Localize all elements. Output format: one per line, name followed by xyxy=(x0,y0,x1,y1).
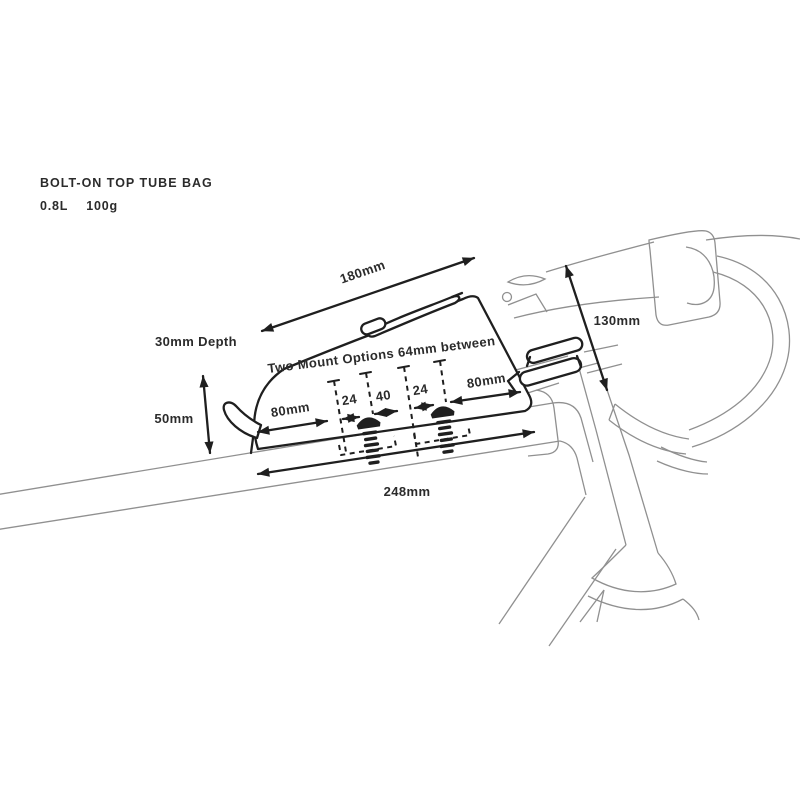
stem-top-cap xyxy=(508,276,545,285)
handlebar-top xyxy=(706,235,800,240)
label-130mm: 130mm xyxy=(594,313,641,328)
drop-bar-end-lower xyxy=(657,447,708,474)
handlebar-drop-outer xyxy=(692,256,790,447)
label-40mm: 40 xyxy=(375,387,392,404)
down-tube-upper-edge xyxy=(499,497,585,624)
fork-crown-upper xyxy=(592,545,676,592)
product-spec-page: BOLT-ON TOP TUBE BAG 0.8L 100g xyxy=(0,0,800,800)
stem-front-facet xyxy=(508,294,547,312)
label-180mm: 180mm xyxy=(338,257,387,286)
head-tube-right-edge xyxy=(598,363,658,553)
head-tube-left-edge xyxy=(579,368,626,545)
label-depth: 30mm Depth xyxy=(155,334,237,349)
stem-faceplate xyxy=(649,231,720,326)
front-mount-tab xyxy=(251,438,253,453)
top-tube-lower-line xyxy=(0,441,560,530)
down-tube-lower-edge xyxy=(549,549,616,646)
strap-tail-lines xyxy=(584,345,622,373)
label-50mm: 50mm xyxy=(154,411,193,426)
drop-bar-end-upper xyxy=(609,404,689,454)
handlebar-clamp-curve xyxy=(686,247,714,304)
bolt-threads xyxy=(438,421,454,452)
top-cap-bolt xyxy=(503,293,512,302)
fork-leg xyxy=(683,599,699,620)
top-tube-end-upper xyxy=(553,403,593,462)
bag-base-plate xyxy=(528,390,558,456)
label-248mm: 248mm xyxy=(384,484,431,499)
stem-upper-edge xyxy=(546,242,654,272)
label-24mm-left: 24 xyxy=(341,391,359,408)
arrow-50mm xyxy=(203,376,210,453)
label-24mm-right: 24 xyxy=(412,381,430,398)
product-diagram-svg: 180mm 30mm Depth 50mm 130mm Two Mount Op… xyxy=(0,0,800,800)
bolt-threads xyxy=(364,432,380,463)
bike-frame-lines xyxy=(0,231,800,646)
top-tube-end-lower xyxy=(560,441,586,495)
